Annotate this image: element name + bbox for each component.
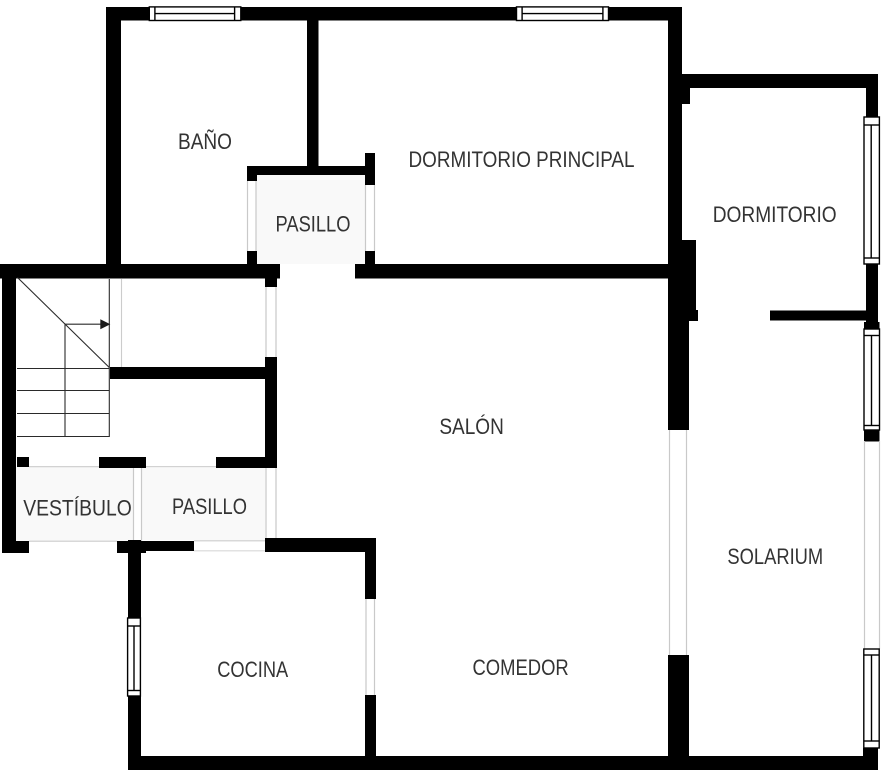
- svg-text:VESTÍBULO: VESTÍBULO: [23, 496, 132, 521]
- svg-text:PASILLO: PASILLO: [172, 494, 247, 519]
- svg-text:DORMITORIO PRINCIPAL: DORMITORIO PRINCIPAL: [409, 147, 635, 172]
- svg-text:PASILLO: PASILLO: [276, 212, 351, 237]
- svg-text:COMEDOR: COMEDOR: [472, 655, 568, 680]
- svg-text:SALÓN: SALÓN: [439, 414, 504, 439]
- svg-text:COCINA: COCINA: [217, 657, 288, 682]
- svg-text:BAÑO: BAÑO: [178, 129, 232, 154]
- svg-text:DORMITORIO: DORMITORIO: [713, 202, 837, 227]
- svg-text:SOLARIUM: SOLARIUM: [727, 544, 823, 569]
